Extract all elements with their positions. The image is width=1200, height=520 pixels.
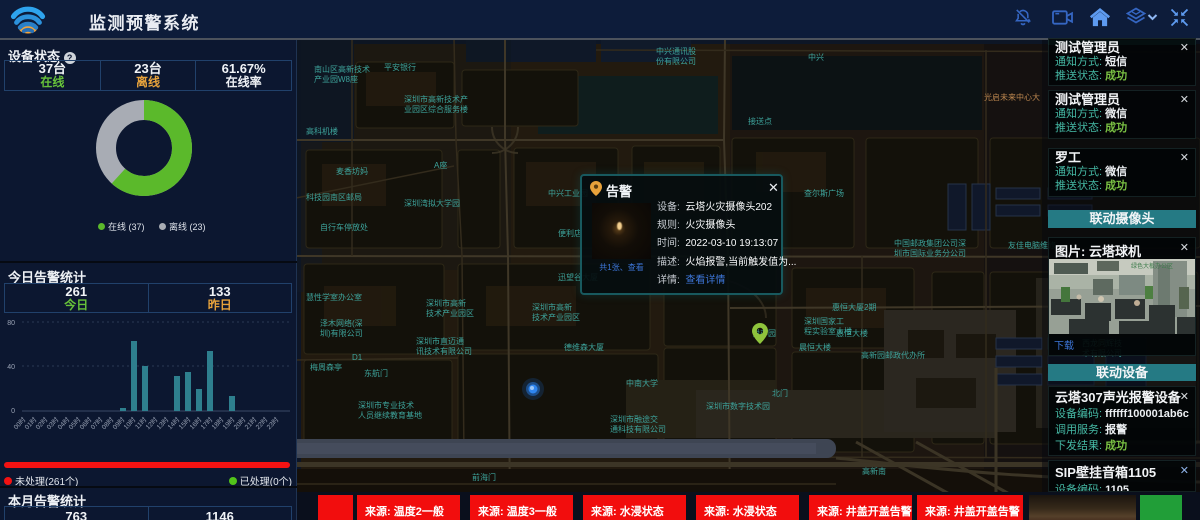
svg-text:中兴: 中兴	[808, 52, 824, 62]
svg-text:中兴通讯股: 中兴通讯股	[656, 46, 696, 56]
svg-text:程实验室大楼: 程实验室大楼	[804, 326, 852, 336]
svg-text:深圳市专业技术: 深圳市专业技术	[358, 400, 414, 410]
svg-text:圳)有限公司: 圳)有限公司	[320, 328, 363, 338]
svg-text:深圳市高新: 深圳市高新	[532, 302, 572, 312]
svg-text:便利店: 便利店	[558, 228, 582, 238]
svg-text:中南大学: 中南大学	[626, 378, 658, 388]
svg-text:讯技术有限公司: 讯技术有限公司	[416, 346, 472, 356]
svg-text:绿色大板办公区: 绿色大板办公区	[1131, 262, 1173, 270]
svg-text:查尔斯广场: 查尔斯广场	[804, 188, 844, 198]
svg-text:惠恒大厦2期: 惠恒大厦2期	[832, 302, 876, 312]
svg-text:自行车停放处: 自行车停放处	[320, 222, 368, 232]
svg-text:慧性学室办公室: 慧性学室办公室	[306, 292, 362, 302]
svg-text:深圳国家工: 深圳国家工	[804, 316, 844, 326]
svg-text:0: 0	[11, 408, 15, 415]
svg-text:接送点: 接送点	[748, 116, 772, 126]
svg-text:深圳市高新技术产: 深圳市高新技术产	[404, 94, 468, 104]
svg-text:深圳湾拟大学园: 深圳湾拟大学园	[404, 198, 460, 208]
svg-text:深圳市直迈通: 深圳市直迈通	[416, 336, 464, 346]
svg-text:业园区综合服务楼: 业园区综合服务楼	[404, 104, 468, 114]
svg-text:泽木网络(深: 泽木网络(深	[320, 318, 363, 328]
svg-text:德维森大厦: 德维森大厦	[564, 342, 604, 352]
svg-text:麦香坊妈: 麦香坊妈	[336, 166, 368, 176]
svg-text:高新南: 高新南	[862, 466, 886, 476]
svg-text:技术产业园区: 技术产业园区	[426, 308, 474, 318]
svg-text:北门: 北门	[772, 388, 788, 398]
svg-text:东航门: 东航门	[364, 368, 388, 378]
svg-text:深圳市高新: 深圳市高新	[426, 298, 466, 308]
svg-text:通科技有限公司: 通科技有限公司	[610, 424, 666, 434]
svg-text:D1: D1	[352, 353, 363, 362]
svg-text:高新园邮政代办所: 高新园邮政代办所	[861, 350, 925, 360]
svg-text:A座: A座	[434, 160, 447, 170]
svg-text:40: 40	[7, 364, 15, 371]
svg-text:人员继续教育基地: 人员继续教育基地	[358, 410, 422, 420]
svg-text:深圳市数字技术园: 深圳市数字技术园	[706, 401, 770, 411]
svg-text:光启未来中心大: 光启未来中心大	[984, 92, 1040, 102]
svg-text:高科机楼: 高科机楼	[306, 126, 338, 136]
svg-text:圳市国际业务分公司: 圳市国际业务分公司	[894, 248, 966, 258]
svg-text:份有限公司: 份有限公司	[656, 56, 696, 66]
svg-text:产业园W8座: 产业园W8座	[314, 74, 358, 84]
svg-text:中国邮政集团公司深: 中国邮政集团公司深	[894, 238, 966, 248]
svg-text:80: 80	[7, 320, 15, 327]
svg-text:前海门: 前海门	[472, 472, 496, 482]
svg-text:晨恒大楼: 晨恒大楼	[799, 342, 831, 352]
svg-text:南山区高新技术: 南山区高新技术	[314, 64, 370, 74]
svg-text:深圳市融途交: 深圳市融途交	[610, 414, 658, 424]
svg-text:梅周森亭: 梅周森亭	[310, 362, 342, 372]
svg-text:平安银行: 平安银行	[384, 62, 416, 72]
svg-text:技术产业园区: 技术产业园区	[532, 312, 580, 322]
svg-text:科技园南区邮局: 科技园南区邮局	[306, 192, 362, 202]
